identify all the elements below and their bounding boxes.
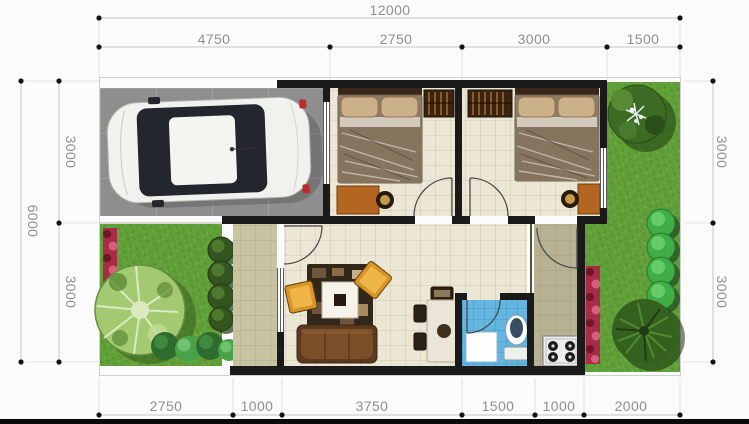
dim-bottom-5: 1000	[543, 399, 576, 413]
dim-top-4: 1500	[627, 32, 660, 46]
dim-right-1: 3000	[715, 136, 729, 169]
wardrobe-1	[424, 90, 454, 117]
bush-row-right	[647, 209, 680, 313]
wardrobe-2	[468, 90, 512, 117]
dim-bottom-2: 1000	[241, 399, 274, 413]
bed-2	[515, 88, 599, 181]
armchair-left	[284, 280, 317, 313]
bed-1	[338, 88, 422, 183]
car	[106, 91, 324, 210]
floor-plan-drawing	[0, 0, 749, 424]
toilet	[504, 315, 529, 360]
screen-edge-bar	[0, 419, 749, 424]
dim-right-2: 3000	[715, 276, 729, 309]
bedroom-1	[330, 88, 455, 216]
flower-bed-right	[586, 266, 601, 364]
terrace	[233, 224, 277, 366]
dim-top-total: 12000	[370, 3, 411, 17]
shower-tray	[466, 332, 497, 362]
dim-bottom-6: 2000	[615, 399, 648, 413]
carport	[100, 88, 324, 216]
floor-plan-sheet: 12000 4750 2750 3000 1500 2750 1000 3750…	[0, 0, 749, 424]
dim-bottom-4: 1500	[482, 399, 515, 413]
garden-left	[95, 223, 240, 366]
dim-left-1: 3000	[64, 136, 78, 169]
sofa	[297, 325, 377, 363]
stove	[543, 336, 579, 366]
dim-top-1: 4750	[198, 32, 231, 46]
dim-top-2: 2750	[380, 32, 413, 46]
kitchen	[531, 224, 579, 366]
dim-top-3: 3000	[518, 32, 551, 46]
dim-bottom-3: 3750	[356, 399, 389, 413]
dim-left-total: 6000	[26, 205, 40, 238]
bedroom-2	[462, 88, 600, 216]
dim-left-2: 3000	[64, 276, 78, 309]
dim-bottom-1: 2750	[150, 399, 183, 413]
